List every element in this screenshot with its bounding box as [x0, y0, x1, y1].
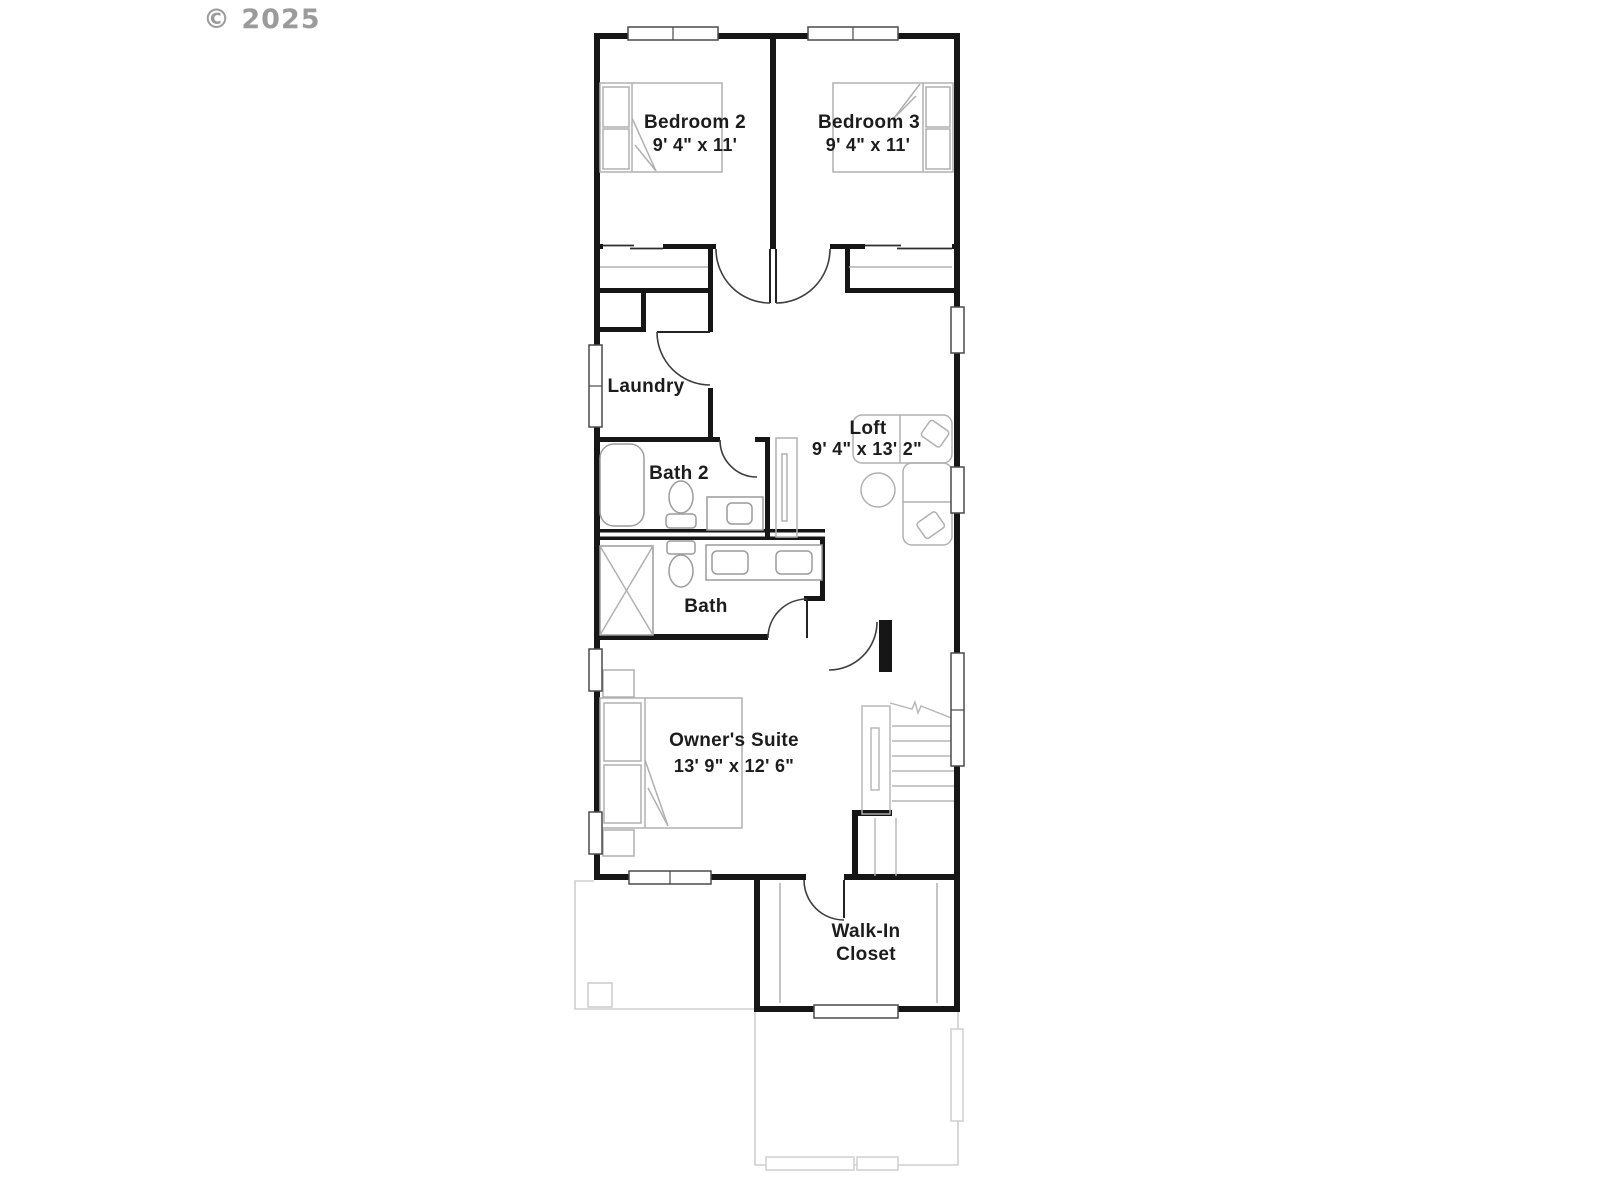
loft-label: Loft [849, 418, 886, 439]
stairs [862, 702, 954, 876]
stair-railing [862, 706, 890, 814]
walkin-closet-label-line1: Walk-In [832, 921, 901, 942]
lower-level-outline [575, 881, 963, 1170]
lower-window-bottom-1 [766, 1157, 854, 1170]
bedroom3-label: Bedroom 3 [818, 112, 920, 133]
floor-plan-canvas: Bedroom 2 9' 4" x 11' Bedroom 3 9' 4" x … [0, 0, 1600, 1200]
bedroom2-label: Bedroom 2 [644, 112, 746, 133]
lower-window-right [951, 1029, 963, 1121]
copyright-text: © 2025 [203, 4, 321, 35]
lower-window-bottom-2 [857, 1157, 898, 1170]
bath2-fixtures [600, 444, 763, 530]
floor-plan-page: Bedroom 2 9' 4" x 11' Bedroom 3 9' 4" x … [0, 0, 1600, 1200]
door-swings [657, 249, 877, 920]
stair-break-line [890, 702, 954, 719]
bedroom2-dims: 9' 4" x 11' [653, 135, 737, 155]
owners-suite-label: Owner's Suite [669, 730, 799, 751]
loft-dims: 9' 4" x 13' 2" [812, 439, 922, 459]
bath-label: Bath [684, 596, 727, 617]
laundry-label: Laundry [607, 376, 684, 397]
bedroom3-dims: 9' 4" x 11' [826, 135, 910, 155]
furniture [600, 83, 953, 1003]
walkin-closet-label-line2: Closet [836, 944, 896, 965]
bath-fixtures [600, 541, 822, 635]
walls [594, 33, 960, 1012]
closet-bypass-doors [603, 246, 952, 249]
owners-suite-dims: 13' 9" x 12' 6" [674, 756, 794, 776]
bath2-label: Bath 2 [649, 463, 709, 484]
